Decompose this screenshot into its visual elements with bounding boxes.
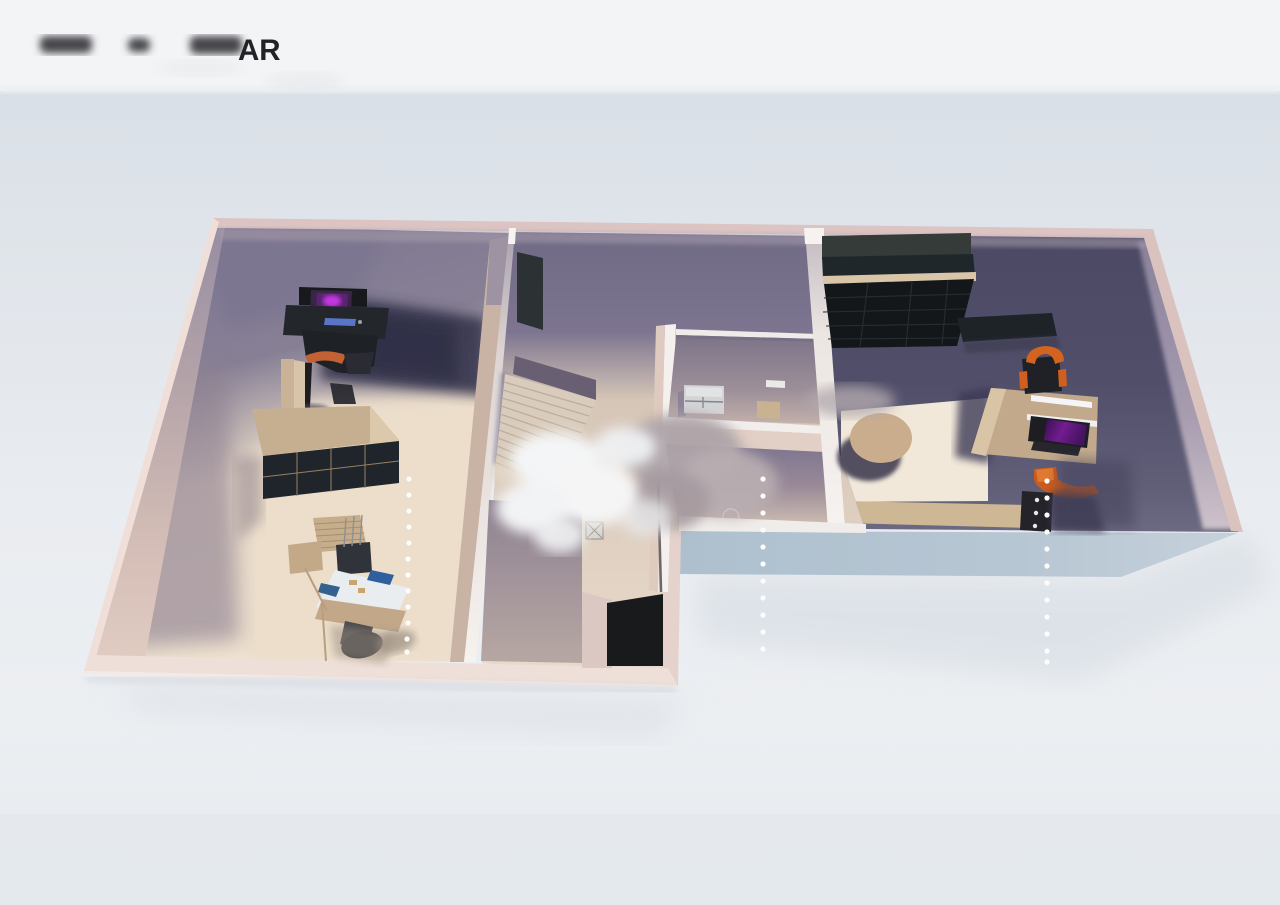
svg-text:AR: AR (238, 34, 281, 67)
